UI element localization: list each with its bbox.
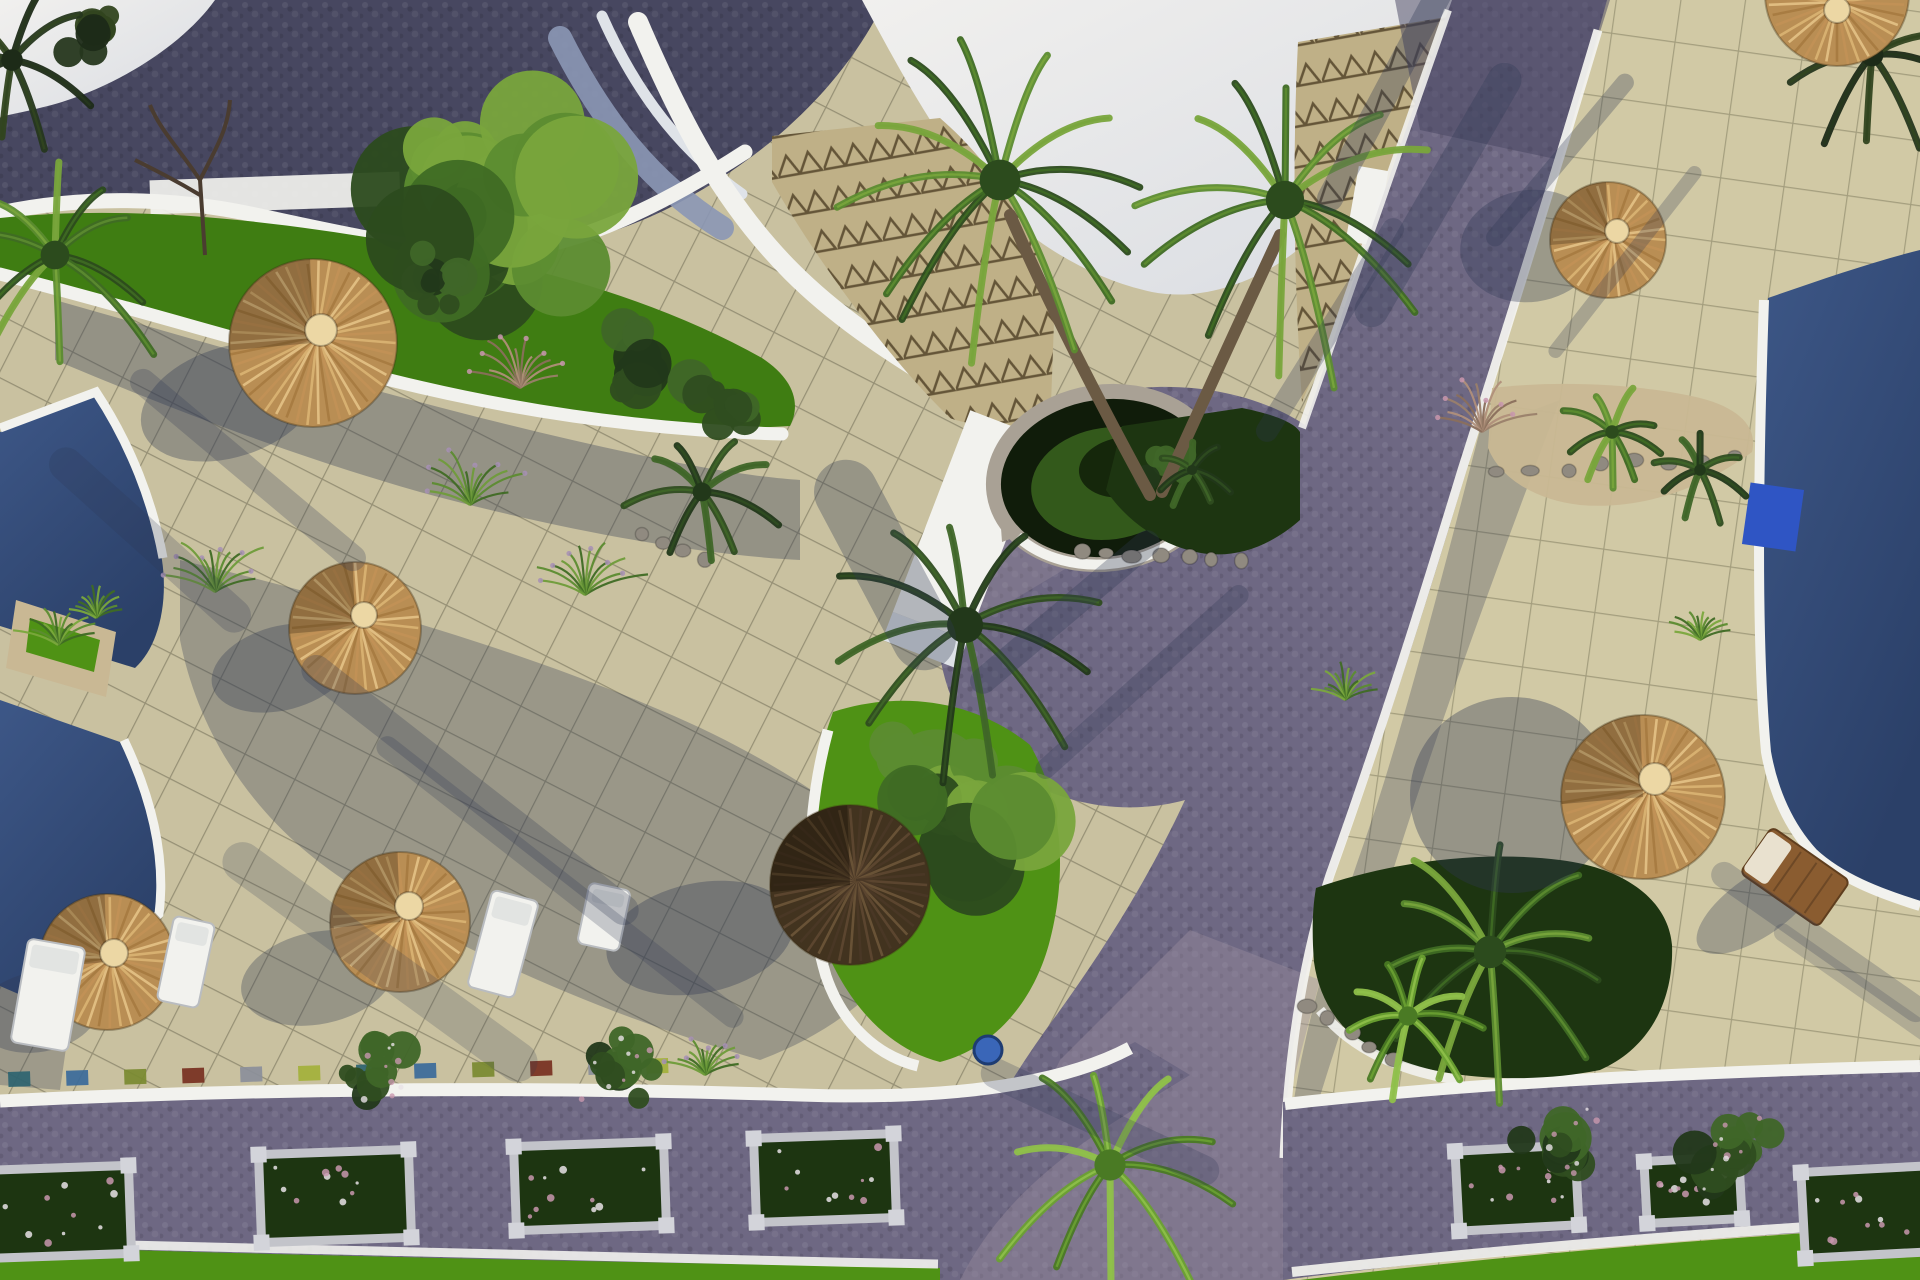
flower-speck bbox=[635, 1054, 639, 1058]
flower-speck bbox=[1711, 1168, 1714, 1171]
flower-speck bbox=[384, 1065, 387, 1068]
flower-speck bbox=[398, 1085, 403, 1090]
flower-speck bbox=[1757, 1116, 1762, 1121]
palm-crown bbox=[1094, 1149, 1125, 1180]
flower-speck bbox=[606, 1084, 611, 1089]
flower-head bbox=[723, 1043, 728, 1048]
flower-speck bbox=[1703, 1187, 1706, 1190]
mosaic-tile bbox=[240, 1066, 263, 1082]
planter-post bbox=[1451, 1223, 1468, 1240]
mosaic-tile bbox=[414, 1063, 437, 1079]
flower-head bbox=[560, 361, 565, 366]
umbrella-center-pole bbox=[1605, 219, 1629, 243]
flower-speck bbox=[1713, 1142, 1718, 1147]
palm-crown bbox=[1266, 181, 1304, 219]
umbrella-center-pole bbox=[351, 602, 377, 628]
flower-head bbox=[538, 578, 543, 583]
umbrella-center-pole bbox=[1639, 763, 1671, 795]
planter-post bbox=[1734, 1210, 1751, 1227]
flower-head bbox=[480, 351, 485, 356]
planter-post bbox=[1571, 1216, 1588, 1233]
palm-crown bbox=[1605, 425, 1618, 438]
flower-head bbox=[472, 463, 477, 468]
flower-speck bbox=[1574, 1161, 1579, 1166]
street-planter-box bbox=[1792, 1157, 1920, 1267]
thatch-umbrella-top-left bbox=[229, 259, 397, 427]
flower-head bbox=[550, 563, 555, 568]
flower-speck bbox=[361, 1096, 368, 1103]
thatch-umbrella-center-shaded bbox=[770, 805, 930, 965]
rock bbox=[1297, 999, 1317, 1013]
flower-head bbox=[1483, 398, 1488, 403]
thatch-spoke bbox=[317, 337, 319, 425]
planter-post bbox=[885, 1125, 902, 1142]
rock bbox=[1205, 552, 1218, 566]
flower-head bbox=[734, 1054, 739, 1059]
flower-head bbox=[1443, 396, 1448, 401]
street-planter-box bbox=[0, 1157, 140, 1267]
flower-head bbox=[498, 334, 503, 339]
palm-crown bbox=[1398, 1006, 1417, 1025]
flower-speck bbox=[647, 1047, 653, 1053]
flower-speck bbox=[593, 1061, 597, 1065]
flower-head bbox=[522, 471, 527, 476]
flower-speck bbox=[1723, 1156, 1729, 1162]
street-planter-box bbox=[505, 1133, 674, 1239]
flower-head bbox=[588, 546, 593, 551]
palm-crown bbox=[1187, 465, 1197, 475]
rock bbox=[1235, 553, 1248, 569]
umbrella-center-pole bbox=[305, 314, 337, 346]
planter-post bbox=[1636, 1153, 1653, 1170]
planter-post bbox=[250, 1146, 267, 1163]
flower-head bbox=[524, 336, 529, 341]
flower-head bbox=[1435, 415, 1440, 420]
flower-head bbox=[706, 1045, 711, 1050]
flower-speck bbox=[1573, 1121, 1578, 1126]
rock bbox=[675, 544, 691, 557]
planter-post bbox=[655, 1133, 672, 1150]
flower-head bbox=[425, 488, 430, 493]
planter-post bbox=[658, 1217, 675, 1234]
palm-crown bbox=[1, 49, 23, 71]
planter-post bbox=[1792, 1164, 1809, 1181]
flower-speck bbox=[1719, 1137, 1723, 1141]
rock bbox=[1074, 544, 1091, 560]
planter-post bbox=[400, 1141, 417, 1158]
planter-post bbox=[120, 1157, 137, 1174]
palm-crown bbox=[980, 160, 1021, 201]
planter-post bbox=[745, 1130, 762, 1147]
flower-speck bbox=[1517, 1167, 1521, 1171]
mosaic-tile bbox=[182, 1068, 205, 1084]
umbrella-center-pole bbox=[100, 939, 128, 967]
mosaic-tile bbox=[66, 1070, 89, 1086]
flower-head bbox=[495, 462, 500, 467]
flower-head bbox=[1510, 412, 1515, 417]
flower-speck bbox=[390, 1093, 395, 1098]
flower-head bbox=[248, 569, 253, 574]
rock bbox=[1182, 549, 1198, 564]
flower-speck bbox=[632, 1070, 636, 1074]
planter-post bbox=[508, 1222, 525, 1239]
flower-head bbox=[541, 351, 546, 356]
rock bbox=[1320, 1010, 1334, 1025]
misc-objects bbox=[974, 1036, 1002, 1064]
flower-head bbox=[467, 369, 472, 374]
flower-speck bbox=[618, 1036, 624, 1042]
street-planter-box bbox=[745, 1125, 904, 1230]
flower-speck bbox=[395, 1058, 402, 1065]
thatch-umbrella-right-lower bbox=[1561, 715, 1725, 879]
flower-speck bbox=[622, 1079, 625, 1082]
palm-crown bbox=[693, 483, 712, 502]
flower-speck bbox=[388, 1079, 394, 1085]
planter-post bbox=[1639, 1215, 1656, 1232]
planter-post bbox=[505, 1138, 522, 1155]
flower-head bbox=[620, 571, 625, 576]
flower-speck bbox=[1551, 1132, 1556, 1137]
planter-post bbox=[748, 1214, 765, 1231]
blue-planter-pot bbox=[974, 1036, 1002, 1064]
mosaic-tile bbox=[298, 1065, 321, 1081]
flower-head bbox=[239, 550, 244, 555]
flower-speck bbox=[1723, 1122, 1728, 1127]
scene-canvas bbox=[0, 0, 1920, 1280]
palm-crown bbox=[1694, 464, 1706, 476]
blue-pool-box bbox=[1742, 483, 1804, 552]
flower-head bbox=[1459, 377, 1464, 382]
rock bbox=[1562, 464, 1576, 478]
flower-speck bbox=[1585, 1108, 1588, 1111]
flower-head bbox=[689, 1036, 694, 1041]
planter-post bbox=[403, 1229, 420, 1246]
flower-head bbox=[1499, 402, 1504, 407]
planter-post bbox=[888, 1209, 905, 1226]
umbrella-center-pole bbox=[395, 892, 423, 920]
flower-head bbox=[605, 560, 610, 565]
planter-post bbox=[123, 1245, 140, 1262]
palm-crown bbox=[1474, 936, 1506, 968]
flower-speck bbox=[1546, 1144, 1553, 1151]
planter-post bbox=[1447, 1143, 1464, 1160]
mosaic-tile bbox=[124, 1069, 147, 1085]
rock bbox=[1362, 1042, 1377, 1053]
rock bbox=[635, 527, 648, 540]
flower-speck bbox=[388, 1046, 391, 1049]
palm-crown bbox=[41, 241, 70, 270]
flower-speck bbox=[1593, 1117, 1599, 1123]
rock bbox=[1488, 466, 1504, 477]
flower-speck bbox=[1739, 1150, 1743, 1154]
flower-head bbox=[566, 551, 571, 556]
flower-speck bbox=[1565, 1165, 1570, 1170]
flower-head bbox=[426, 465, 431, 470]
planter-post bbox=[1797, 1250, 1814, 1267]
flower-speck bbox=[391, 1043, 394, 1046]
rock bbox=[1521, 465, 1539, 476]
umbrella-center-pole bbox=[1824, 0, 1850, 23]
street-planter-box bbox=[250, 1141, 420, 1251]
flower-speck bbox=[579, 1096, 585, 1102]
flower-speck bbox=[365, 1053, 371, 1059]
flower-speck bbox=[1571, 1170, 1577, 1176]
flower-head bbox=[662, 1059, 667, 1064]
mosaic-tile bbox=[8, 1071, 31, 1087]
flower-head bbox=[218, 547, 223, 552]
flower-head bbox=[446, 447, 451, 452]
flower-speck bbox=[626, 1051, 630, 1055]
aerial-resort-render bbox=[0, 0, 1920, 1280]
planter-post bbox=[253, 1234, 270, 1251]
